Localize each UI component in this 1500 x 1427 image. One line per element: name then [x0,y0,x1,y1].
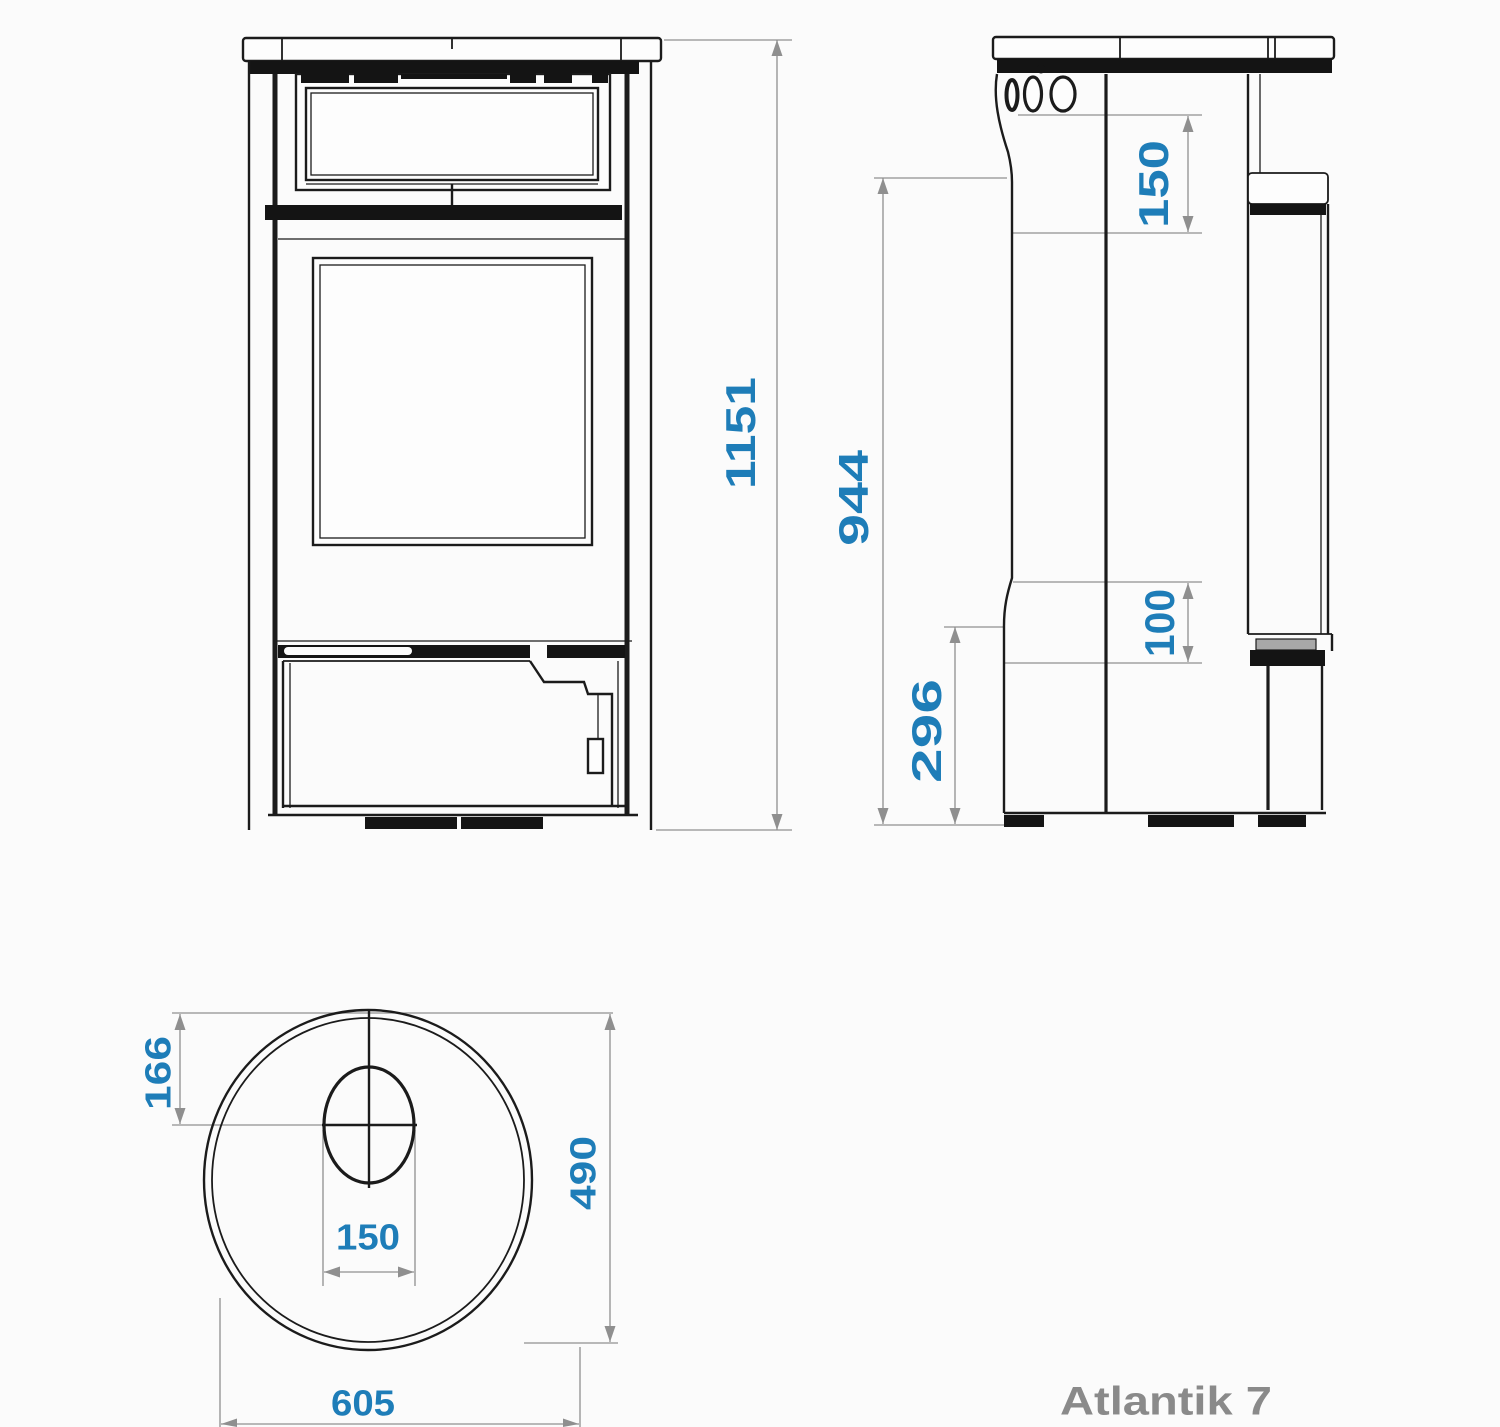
door-step-notch [530,661,612,806]
vent-slot [510,72,536,83]
arrow-up-icon [950,627,961,643]
dim-width-label: 605 [331,1383,395,1424]
base [1004,813,1326,827]
arrow-right-icon [398,1267,414,1278]
control-knob [1007,80,1018,110]
arrow-up-icon [772,40,783,56]
upper-door-glass [306,88,598,180]
arrow-left-icon [221,1419,237,1427]
lower-divider-band [1250,650,1325,666]
foot [1258,815,1306,827]
dim-flue-center-from-back [172,1013,613,1125]
control-knob [1051,77,1075,111]
top-view [204,1010,532,1350]
upper-divider-band [265,205,622,220]
upper-divider-band [1248,173,1328,204]
vent-slot [401,74,507,79]
storage-compartment-door [283,661,625,808]
warming-compartment-door [296,72,610,218]
lower-divider-band [277,641,632,660]
foot [1004,815,1044,827]
arrow-down-icon [1183,646,1194,662]
arrow-down-icon [772,814,783,830]
arrow-up-icon [175,1014,186,1030]
arrow-up-icon [605,1014,616,1030]
control-dot [1037,65,1046,74]
front-profile [1248,74,1332,810]
vent-slot [301,72,349,83]
arrow-up-icon [1183,116,1194,132]
handle-bar [1256,639,1316,650]
dim-flue-center-from-back-label: 166 [138,1036,179,1110]
arrow-down-icon [878,808,889,824]
arrow-up-icon [878,178,889,194]
dim-lower-connection-height-label: 296 [903,679,950,783]
control-knob [1025,77,1042,111]
door-latch [588,739,603,773]
foot [1148,815,1234,827]
arrow-right-icon [563,1419,579,1427]
dim-rear-outlet-height-label: 944 [830,449,877,546]
stove-dimension-drawing: 1151 944 296 150 100 166 490 150 605 Atl… [0,0,1500,1427]
base [268,815,638,829]
arrow-up-icon [1183,583,1194,599]
arrow-down-icon [605,1326,616,1342]
front-view [243,38,661,830]
rear-wall-profile [996,74,1012,813]
foot [461,817,543,829]
arrow-down-icon [950,808,961,824]
vent-slot [544,72,572,83]
dimension-labels: 1151 944 296 150 100 166 490 150 605 [138,140,1184,1424]
arrow-down-icon [1183,216,1194,232]
vent-slot [354,72,398,83]
product-name-label: Atlantik 7 [1060,1380,1272,1424]
dim-flue-height-offset-label: 150 [1130,140,1177,228]
dim-rear-connection-label: 100 [1136,589,1183,657]
foot [365,817,457,829]
top-plate [993,37,1334,59]
dim-depth-label: 490 [563,1136,604,1210]
arrow-left-icon [324,1267,340,1278]
dim-width [220,1298,580,1427]
technical-drawing-page: 1151 944 296 150 100 166 490 150 605 Atl… [0,0,1500,1427]
dimension-lines [172,40,1202,1427]
ash-lip-highlight [284,647,412,655]
dim-overall-height-label: 1151 [717,377,764,489]
dim-lower-connection-height [944,627,1004,824]
fire-door-window [313,258,592,545]
vent-slot [592,72,608,83]
dim-flue-diameter-label: 150 [336,1217,400,1258]
